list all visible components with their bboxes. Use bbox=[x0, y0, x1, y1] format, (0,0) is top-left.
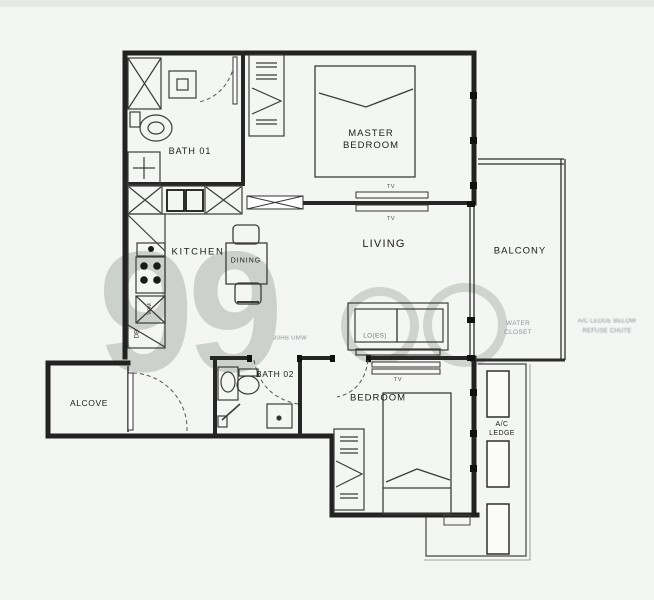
tv-label-master: TV bbox=[387, 184, 395, 190]
bedroom-label: BEDROOM bbox=[350, 393, 406, 404]
master-sliding-door bbox=[247, 196, 303, 209]
ac-units bbox=[487, 371, 509, 554]
ac-ledge-label-line2: LEDGE bbox=[489, 429, 515, 438]
ac-ledge-label: A/C LEDGE bbox=[489, 420, 515, 438]
bedroom-bed bbox=[383, 393, 451, 514]
tv-consoles bbox=[356, 192, 440, 374]
hallway-illegible-note: 30HB UMW bbox=[273, 335, 307, 344]
master-wardrobe bbox=[249, 55, 284, 136]
side-note: A/C LEDGE BELOW REFUSE CHUTE bbox=[578, 318, 636, 337]
kitchen-label: KITCHEN bbox=[172, 247, 225, 258]
balcony-corner-note: WATER CLOSET bbox=[504, 319, 532, 337]
washing-machine-label: W/M bbox=[147, 303, 153, 314]
sofa-illegible-note: LO(ES) bbox=[363, 332, 386, 341]
alcove-label: ALCOVE bbox=[70, 398, 108, 408]
balcony-corner-note-line1: WATER bbox=[504, 319, 532, 328]
sofa bbox=[348, 303, 448, 355]
bath02-label: BATH 02 bbox=[256, 369, 294, 379]
side-note-line1: A/C LEDGE BELOW bbox=[578, 318, 636, 328]
db-label: DB bbox=[134, 329, 141, 338]
bath01-fixtures bbox=[128, 58, 196, 185]
master-bedroom-label-line1: MASTER bbox=[343, 128, 399, 140]
tv-label-bedroom: TV bbox=[394, 377, 402, 383]
floorplan-image: 99 bbox=[0, 0, 654, 600]
master-bedroom-label: MASTER BEDROOM bbox=[343, 128, 399, 152]
balcony-corner-note-line2: CLOSET bbox=[504, 328, 532, 337]
floorplan-linework bbox=[0, 0, 654, 600]
dining-label: DINING bbox=[231, 258, 262, 265]
kitchen-sink bbox=[167, 190, 203, 211]
stove-burners bbox=[140, 246, 161, 284]
bath01-label: BATH 01 bbox=[169, 146, 212, 156]
master-bedroom-label-line2: BEDROOM bbox=[343, 140, 399, 152]
living-label: LIVING bbox=[362, 238, 405, 250]
bedroom-wardrobe bbox=[334, 429, 364, 510]
tv-label-living: TV bbox=[387, 216, 395, 222]
master-bed bbox=[315, 66, 415, 177]
side-note-line2: REFUSE CHUTE bbox=[578, 327, 636, 337]
dining-set bbox=[226, 225, 267, 304]
ac-ledge-label-line1: A/C bbox=[489, 420, 515, 429]
balcony-label: BALCONY bbox=[494, 246, 546, 257]
interior-walls bbox=[125, 53, 470, 434]
